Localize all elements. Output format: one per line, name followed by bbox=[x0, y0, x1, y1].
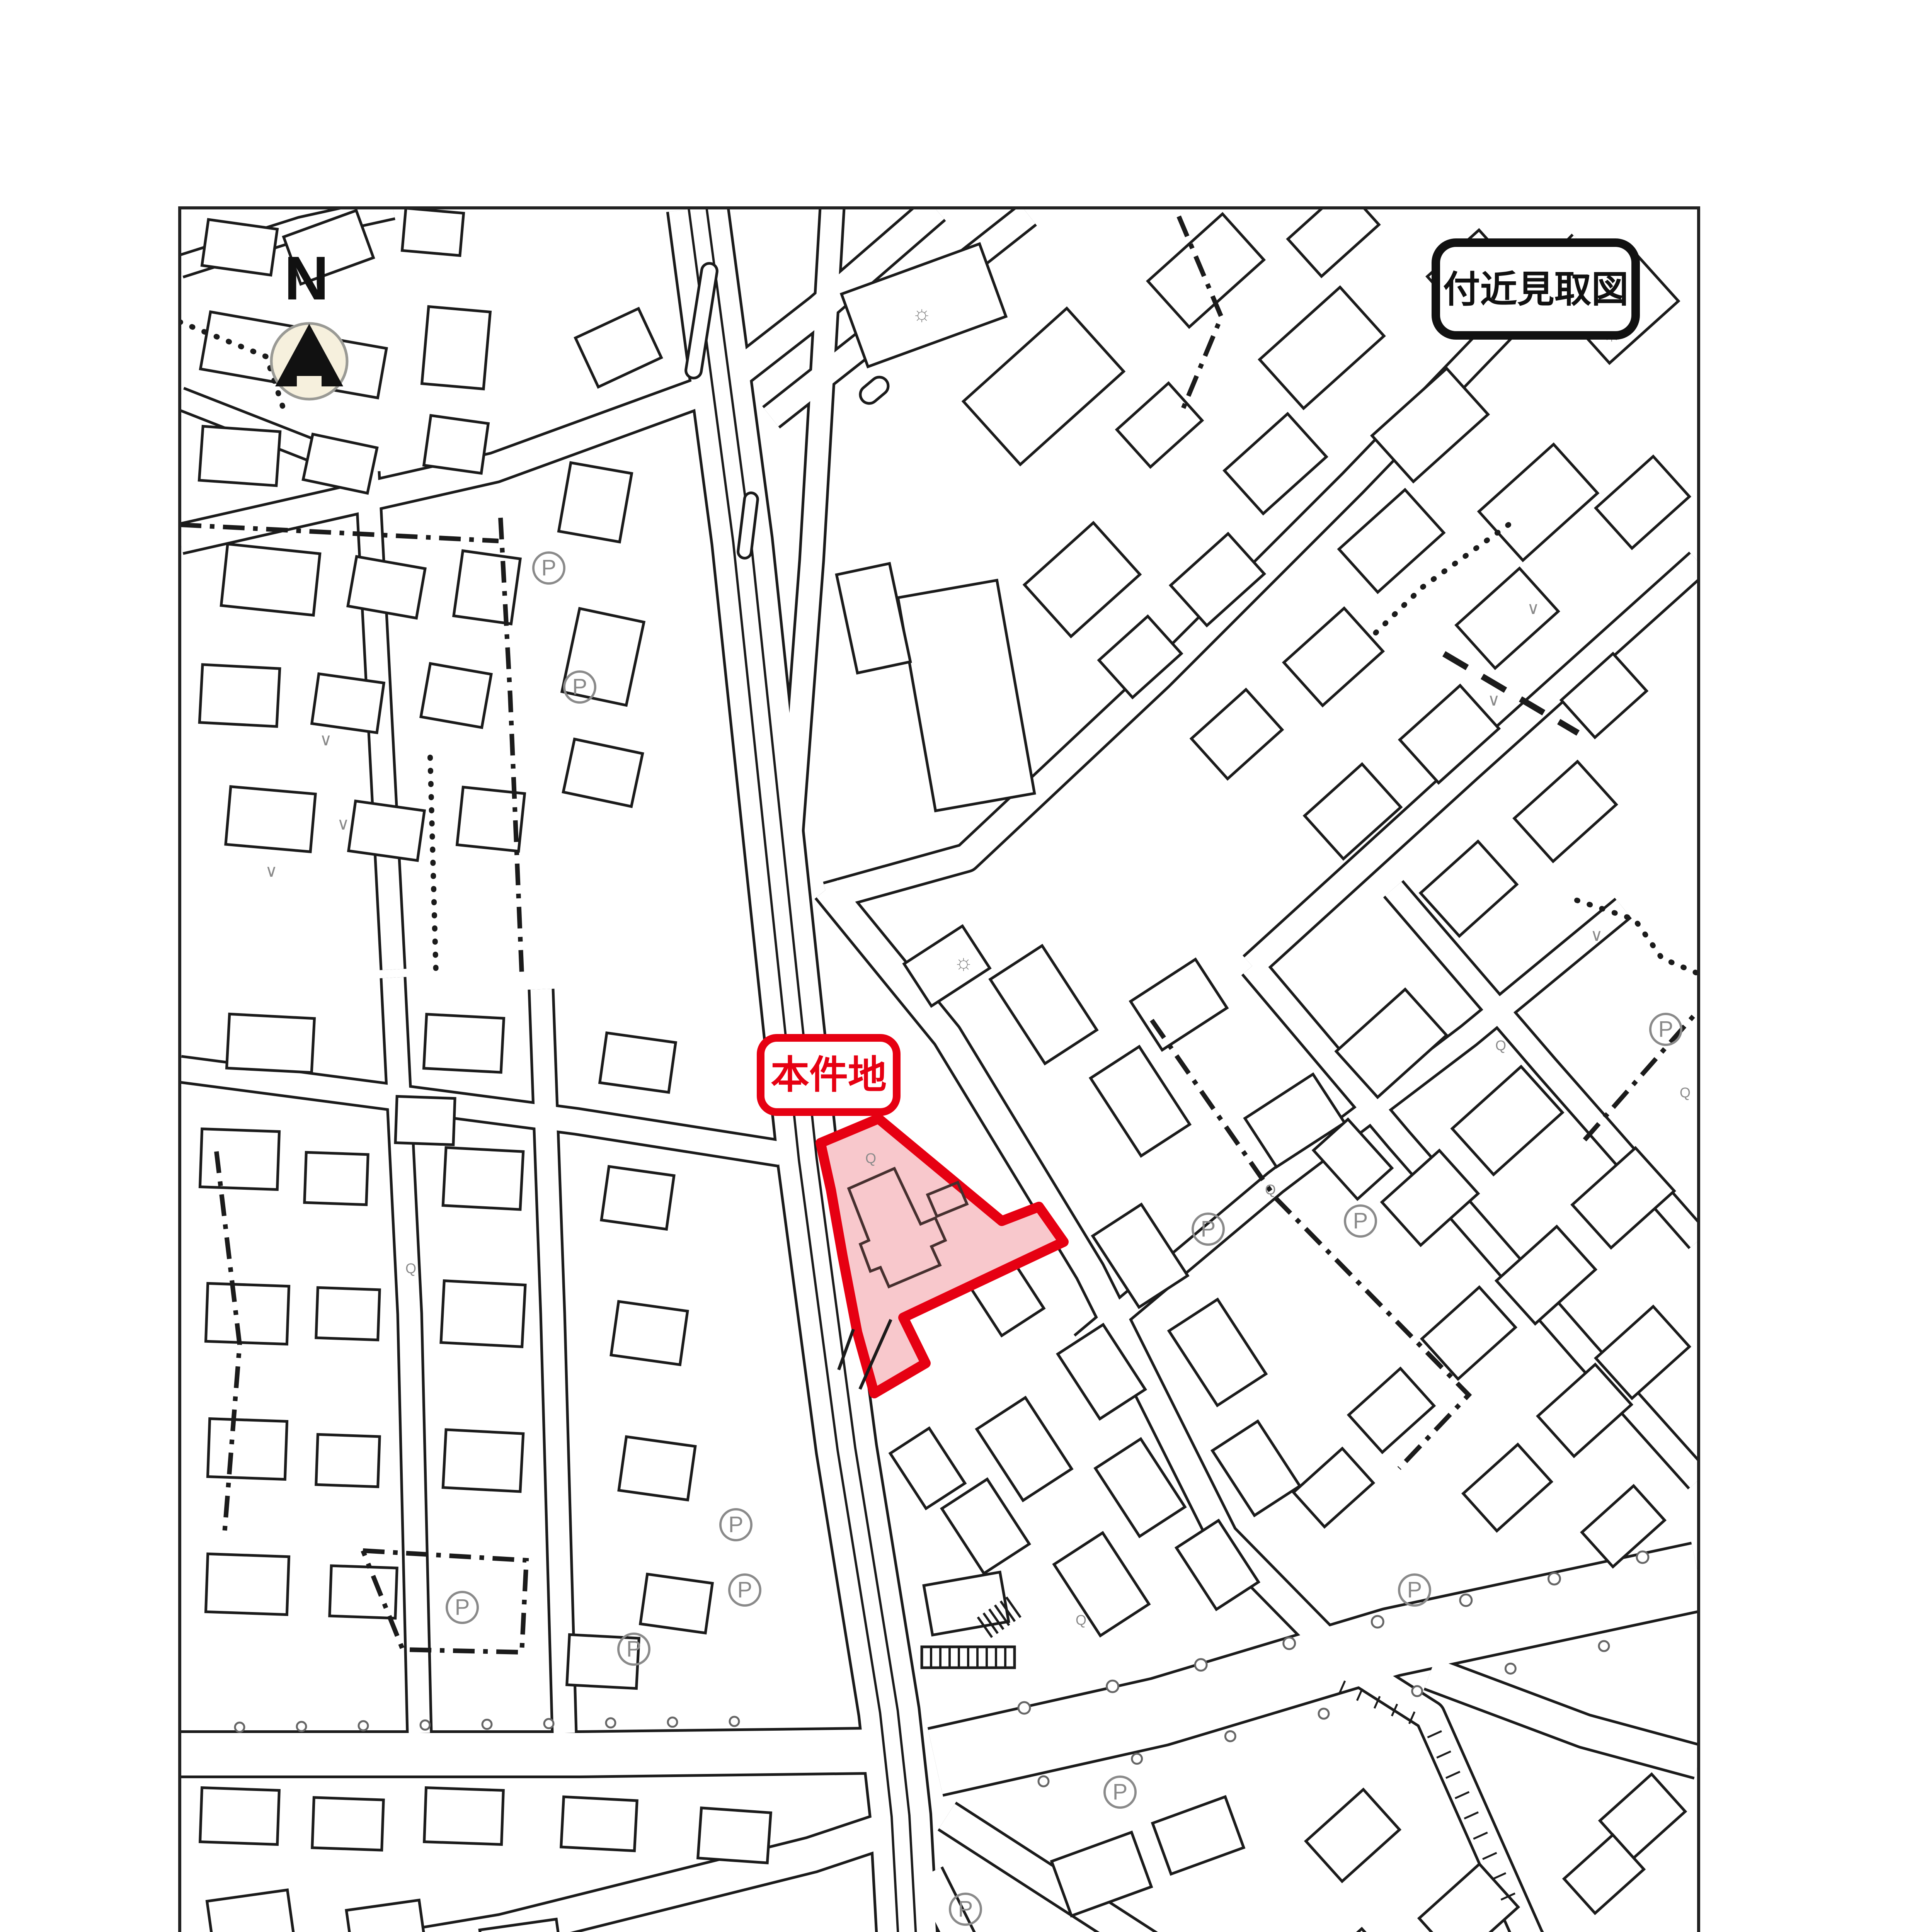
building bbox=[316, 1287, 380, 1340]
north-label: N bbox=[284, 243, 329, 313]
street-circle bbox=[1637, 1551, 1648, 1563]
building bbox=[421, 663, 491, 728]
check-mark: ∨ bbox=[1590, 926, 1603, 945]
building bbox=[330, 1566, 397, 1618]
street-circle bbox=[482, 1720, 492, 1729]
check-mark: ∨ bbox=[1527, 599, 1539, 618]
building bbox=[348, 556, 425, 618]
parking-letter: P bbox=[729, 1512, 744, 1537]
building bbox=[601, 1167, 674, 1229]
check-mark: ∨ bbox=[265, 862, 278, 881]
building bbox=[208, 1419, 287, 1480]
street-circle bbox=[421, 1720, 430, 1730]
parking-letter: P bbox=[737, 1577, 752, 1602]
check-mark: ∨ bbox=[320, 730, 332, 749]
parking-letter: P bbox=[572, 674, 587, 699]
building bbox=[698, 1808, 771, 1863]
street-circle bbox=[730, 1717, 739, 1726]
building bbox=[199, 665, 280, 726]
utility-mark: Q bbox=[1076, 1612, 1086, 1628]
parking-letter: P bbox=[1407, 1577, 1422, 1602]
check-mark: ∨ bbox=[337, 815, 349, 833]
street-circle bbox=[1018, 1702, 1030, 1714]
building bbox=[441, 1281, 525, 1347]
building bbox=[443, 1148, 523, 1209]
title-text: 付近見取図 bbox=[1443, 269, 1629, 310]
street-circle bbox=[1548, 1573, 1560, 1585]
building bbox=[206, 1283, 289, 1344]
sun-symbol: ☼ bbox=[953, 950, 973, 974]
building bbox=[316, 1434, 380, 1487]
street-circle bbox=[297, 1722, 306, 1731]
utility-mark: Q bbox=[1680, 1085, 1691, 1100]
building bbox=[395, 1096, 455, 1145]
parking-letter: P bbox=[541, 555, 557, 580]
north-triangle-notch bbox=[297, 376, 322, 386]
building bbox=[559, 463, 632, 542]
street-circle bbox=[1460, 1594, 1472, 1606]
utility-mark: Q bbox=[1495, 1037, 1506, 1053]
site-label-text: 本件地 bbox=[771, 1053, 887, 1097]
street-circle bbox=[1319, 1709, 1329, 1719]
building bbox=[312, 1798, 383, 1850]
building bbox=[200, 1788, 279, 1845]
street-circle bbox=[1284, 1638, 1295, 1649]
street-circle bbox=[1599, 1641, 1609, 1651]
parking-letter: P bbox=[1658, 1017, 1674, 1042]
building bbox=[424, 415, 489, 473]
vicinity-map-canvas: PPPPPPPPPPPPPPPQQQQQQQQ∨∨∨∨∨∨∨☼☼☼N付近見取図本… bbox=[0, 0, 1917, 1932]
street-circle bbox=[1195, 1659, 1207, 1671]
street-circle bbox=[235, 1723, 244, 1732]
parking-letter: P bbox=[1113, 1779, 1128, 1804]
building bbox=[221, 544, 320, 615]
building bbox=[611, 1301, 688, 1365]
parking-letter: P bbox=[1201, 1216, 1216, 1242]
parking-letter: P bbox=[958, 1896, 973, 1922]
building bbox=[424, 1014, 504, 1072]
site-label-box: 本件地 bbox=[761, 1038, 897, 1112]
street-circle bbox=[1505, 1663, 1515, 1673]
building bbox=[202, 219, 278, 275]
street-circle bbox=[1132, 1754, 1142, 1764]
street-circle bbox=[1107, 1680, 1119, 1692]
street-circle bbox=[544, 1719, 553, 1728]
building bbox=[200, 1129, 279, 1190]
street-circle bbox=[359, 1721, 368, 1730]
building bbox=[454, 551, 520, 624]
parking-letter: P bbox=[455, 1595, 470, 1620]
parking-letter: P bbox=[1353, 1208, 1368, 1233]
street-circle bbox=[1372, 1616, 1383, 1628]
building bbox=[206, 1554, 289, 1614]
building bbox=[402, 208, 463, 256]
building bbox=[619, 1437, 695, 1500]
utility-mark: Q bbox=[1265, 1182, 1276, 1197]
street-circle bbox=[1039, 1776, 1049, 1786]
utility-mark: Q bbox=[405, 1260, 416, 1276]
check-mark: ∨ bbox=[1488, 690, 1500, 709]
building bbox=[424, 1788, 504, 1845]
building bbox=[312, 674, 384, 733]
road-surface-ew-west bbox=[180, 1750, 901, 1754]
sun-symbol: ☼ bbox=[912, 301, 931, 325]
building bbox=[640, 1574, 712, 1633]
building bbox=[226, 787, 315, 852]
building bbox=[443, 1430, 523, 1492]
street-circle bbox=[1412, 1686, 1422, 1696]
utility-mark: Q bbox=[865, 1150, 876, 1166]
building bbox=[561, 1797, 637, 1851]
street-circle bbox=[606, 1718, 615, 1728]
building bbox=[305, 1152, 368, 1205]
building bbox=[422, 306, 490, 389]
building bbox=[199, 426, 280, 486]
parking-letter: P bbox=[627, 1636, 642, 1662]
building bbox=[226, 1014, 314, 1072]
building bbox=[349, 801, 424, 861]
street-circle bbox=[668, 1718, 677, 1727]
title-box: 付近見取図 bbox=[1436, 243, 1636, 335]
vicinity-map-page: PPPPPPPPPPPPPPPQQQQQQQQ∨∨∨∨∨∨∨☼☼☼N付近見取図本… bbox=[0, 0, 1917, 1932]
building bbox=[600, 1033, 676, 1092]
street-circle bbox=[1225, 1731, 1235, 1741]
